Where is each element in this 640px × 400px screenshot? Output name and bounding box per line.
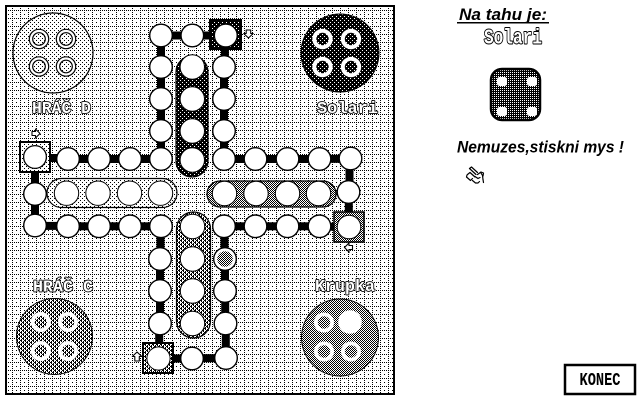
svg-text:Solari: Solari <box>484 28 542 51</box>
svg-text:Nemuzes,stiskni mys !: Nemuzes,stiskni mys ! <box>457 139 624 157</box>
svg-text:KONEC: KONEC <box>580 371 621 391</box>
svg-text:Solari: Solari <box>317 100 378 119</box>
svg-text:HRÁČ D: HRÁČ D <box>32 99 91 119</box>
svg-text:Na tahu je:: Na tahu je: <box>459 5 547 24</box>
svg-text:HRÁČ C: HRÁČ C <box>33 278 93 298</box>
svg-text:Krupka: Krupka <box>315 278 375 297</box>
